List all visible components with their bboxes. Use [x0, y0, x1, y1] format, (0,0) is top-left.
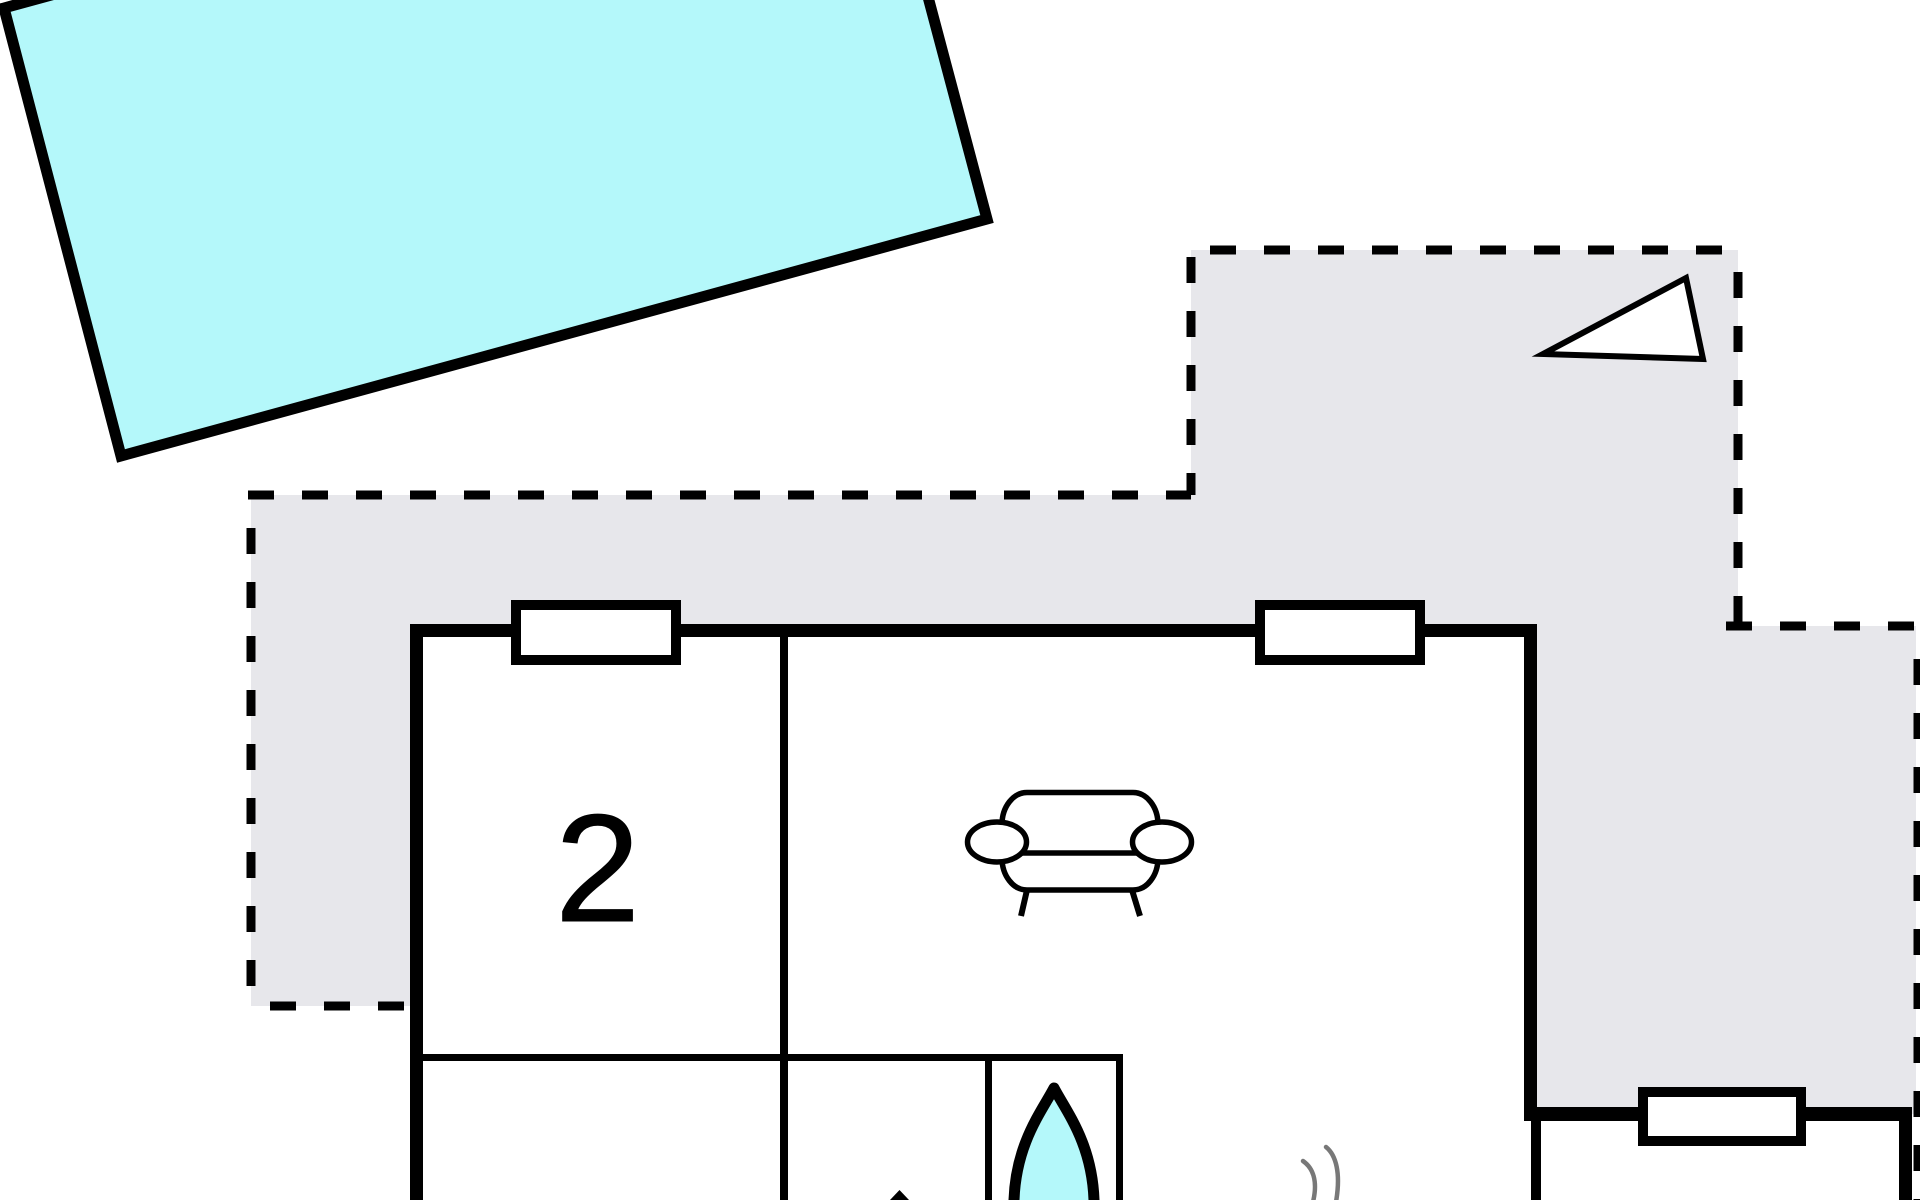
svg-text:2: 2	[555, 783, 640, 954]
